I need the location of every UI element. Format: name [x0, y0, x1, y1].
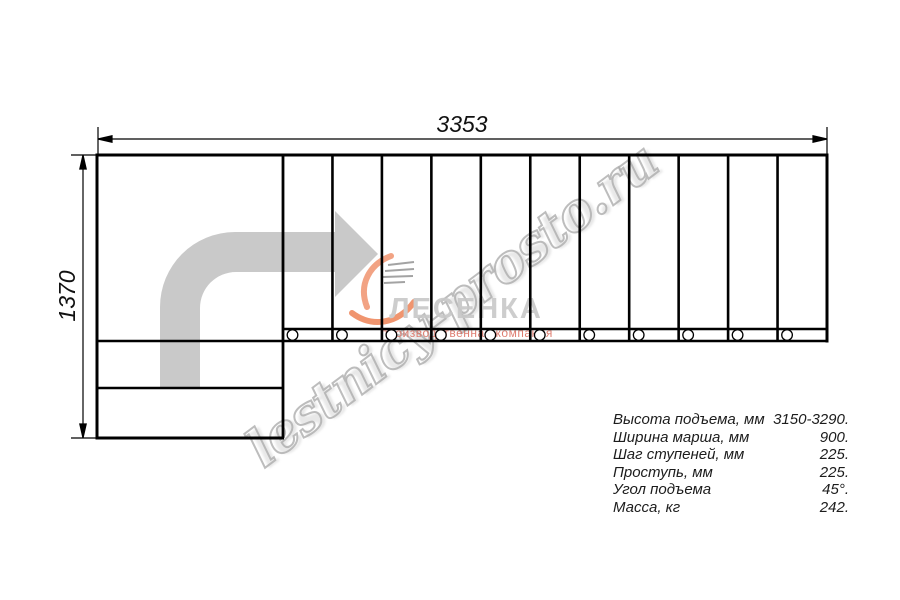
- stair-plan-drawing: lestnicy-prosto.ru ЛЕСЕНКА производствен…: [0, 0, 900, 600]
- baluster-circle: [782, 330, 793, 341]
- spec-value: 900.: [820, 429, 849, 447]
- baluster-circle: [732, 330, 743, 341]
- spec-label: Угол подъема: [613, 481, 711, 499]
- spec-label: Высота подъема, мм: [613, 411, 765, 429]
- spec-row-step-pitch: Шаг ступеней, мм 225.: [613, 446, 849, 464]
- height-arrow-bottom: [80, 424, 86, 438]
- width-arrow-left: [98, 136, 112, 142]
- baluster-circle: [436, 330, 447, 341]
- spec-row-tread: Проступь, мм 225.: [613, 464, 849, 482]
- baluster-circle: [337, 330, 348, 341]
- spec-row-flight-width: Ширина марша, мм 900.: [613, 429, 849, 447]
- height-dimension-value: 1370: [54, 270, 80, 321]
- spec-table: Высота подъема, мм 3150-3290. Ширина мар…: [613, 411, 849, 517]
- spec-value: 242.: [820, 499, 849, 517]
- direction-arrow-shape: [160, 211, 378, 388]
- spec-label: Ширина марша, мм: [613, 429, 749, 447]
- spec-value: 45°.: [822, 481, 849, 499]
- spec-label: Шаг ступеней, мм: [613, 446, 744, 464]
- baluster-circle: [584, 330, 595, 341]
- baluster-circle: [683, 330, 694, 341]
- spec-label: Масса, кг: [613, 499, 680, 517]
- baluster-circle: [485, 330, 496, 341]
- spec-label: Проступь, мм: [613, 464, 713, 482]
- baluster-circle: [287, 330, 298, 341]
- width-arrow-right: [813, 136, 827, 142]
- width-dimension-value: 3353: [436, 111, 487, 137]
- spec-value: 225.: [820, 464, 849, 482]
- spec-row-angle: Угол подъема 45°.: [613, 481, 849, 499]
- spec-row-height: Высота подъема, мм 3150-3290.: [613, 411, 849, 429]
- spec-value: 225.: [820, 446, 849, 464]
- height-arrow-top: [80, 155, 86, 169]
- direction-arrow: [160, 211, 378, 388]
- spec-value: 3150-3290.: [773, 411, 849, 429]
- logo-brand-text: ЛЕСЕНКА: [389, 293, 543, 325]
- baluster-circle: [534, 330, 545, 341]
- spec-row-mass: Масса, кг 242.: [613, 499, 849, 517]
- baluster-circle: [386, 330, 397, 341]
- baluster-circle: [633, 330, 644, 341]
